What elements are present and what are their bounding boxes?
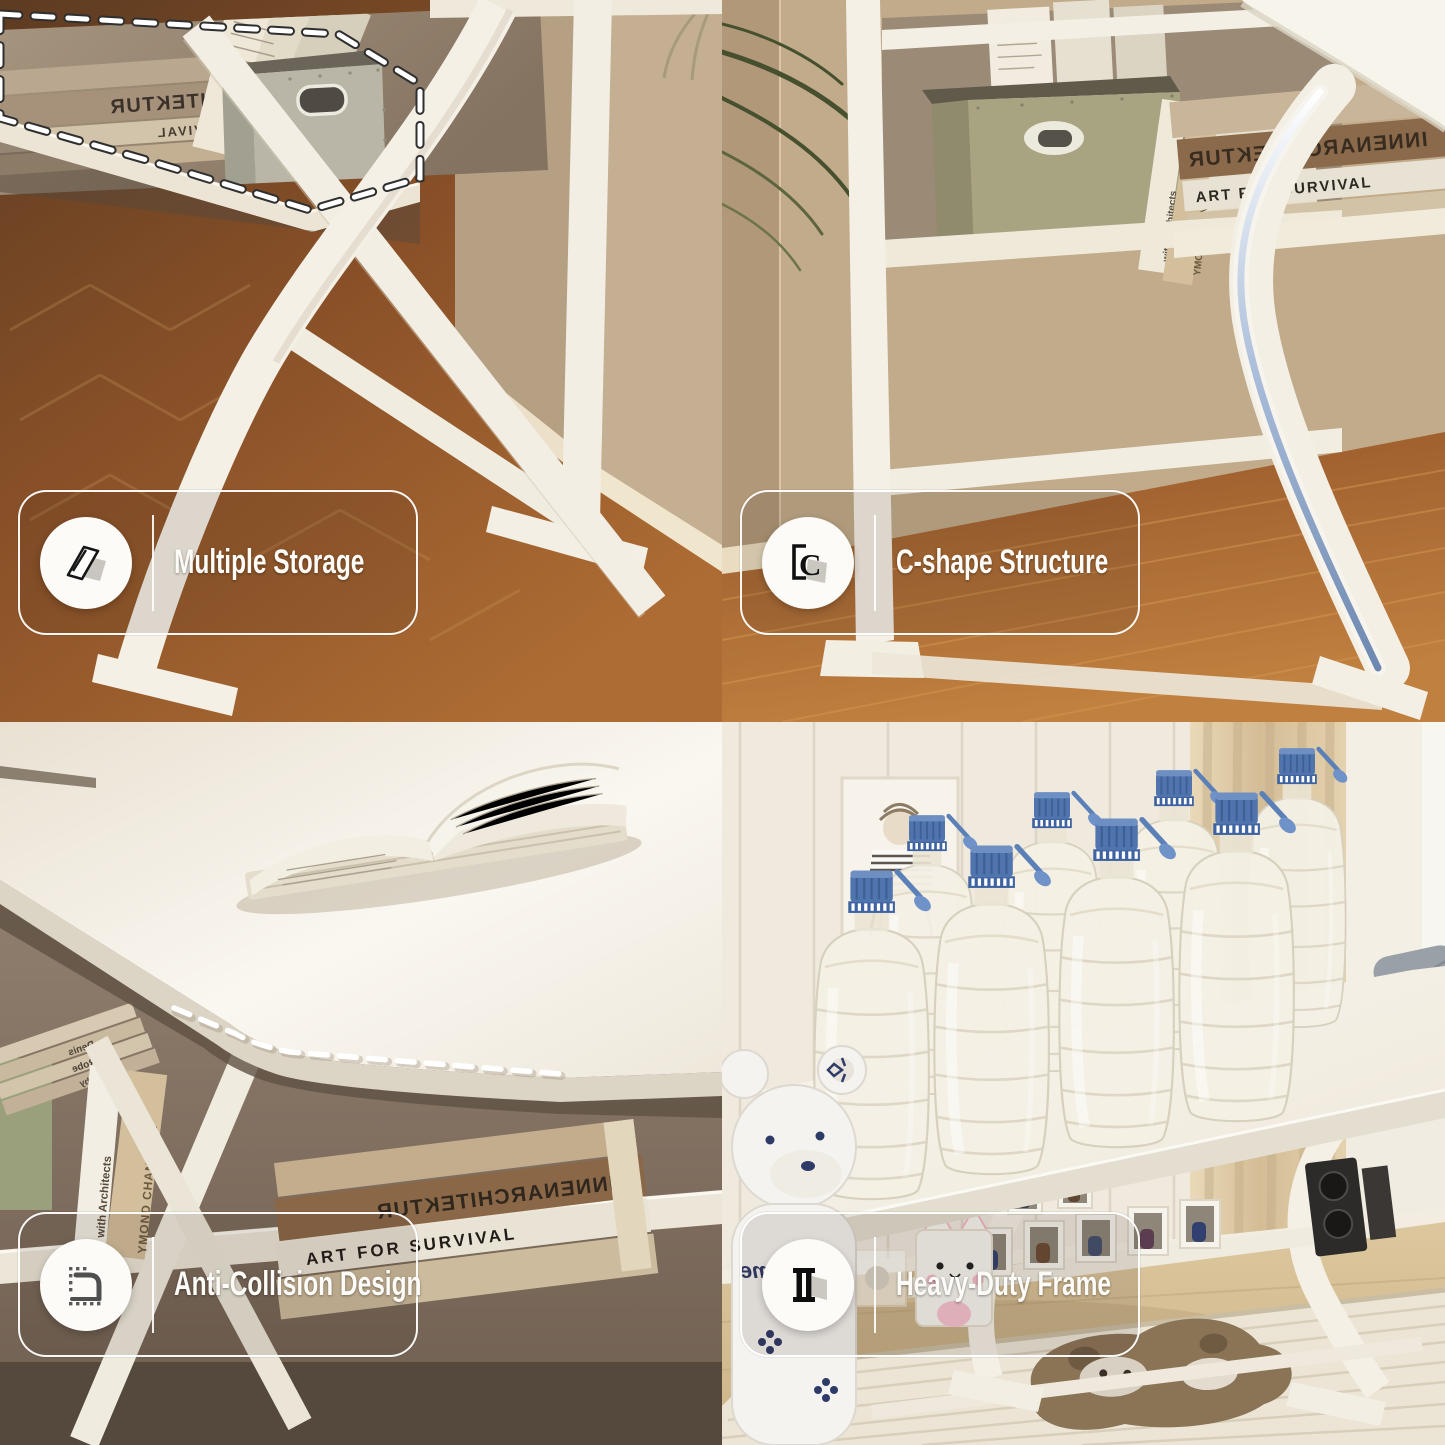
layers-icon <box>60 537 112 589</box>
feature-label: Heavy-Duty Frame <box>896 1265 1111 1304</box>
feature-label: Multiple Storage <box>174 543 364 582</box>
callout-divider <box>874 1237 876 1333</box>
callout-divider <box>874 515 876 611</box>
photo-panel-multiple-storage: INNENARCHITEKTUR ART FOR SURVIVAL <box>0 0 722 722</box>
callout-divider <box>152 1237 154 1333</box>
rounded-corner-icon <box>60 1259 112 1311</box>
column-icon <box>782 1259 834 1311</box>
c-bracket-icon: C <box>782 537 834 589</box>
feature-callout-c-shape: C C-shape Structure <box>740 490 1140 635</box>
box-handle-hole <box>1038 130 1072 147</box>
product-feature-collage: INNENARCHITEKTUR ART FOR SURVIVAL <box>0 0 1445 1445</box>
wall-right-face <box>600 0 722 545</box>
photo-panel-heavy-duty: Supreme Heavy <box>722 722 1445 1445</box>
feature-label: Anti-Collision Design <box>174 1265 422 1304</box>
icon-circle <box>40 517 132 609</box>
photo-panel-anti-collision: Denis Robe by with Architects YMOND CHAN… <box>0 722 722 1445</box>
photo-panel-c-shape: with Architects YMOND CHANDLER INNENARCH… <box>722 0 1445 722</box>
box-handle-hole <box>297 85 346 115</box>
feature-callout-multiple-storage: Multiple Storage <box>18 490 418 635</box>
feature-callout-heavy-duty: Heavy-Duty Frame <box>740 1212 1140 1357</box>
feature-label: C-shape Structure <box>896 543 1108 582</box>
icon-circle: C <box>762 517 854 609</box>
feature-callout-anti-collision: Anti-Collision Design <box>18 1212 418 1357</box>
icon-circle <box>762 1239 854 1331</box>
callout-divider <box>152 515 154 611</box>
icon-circle <box>40 1239 132 1331</box>
c-glyph: C <box>799 547 821 582</box>
